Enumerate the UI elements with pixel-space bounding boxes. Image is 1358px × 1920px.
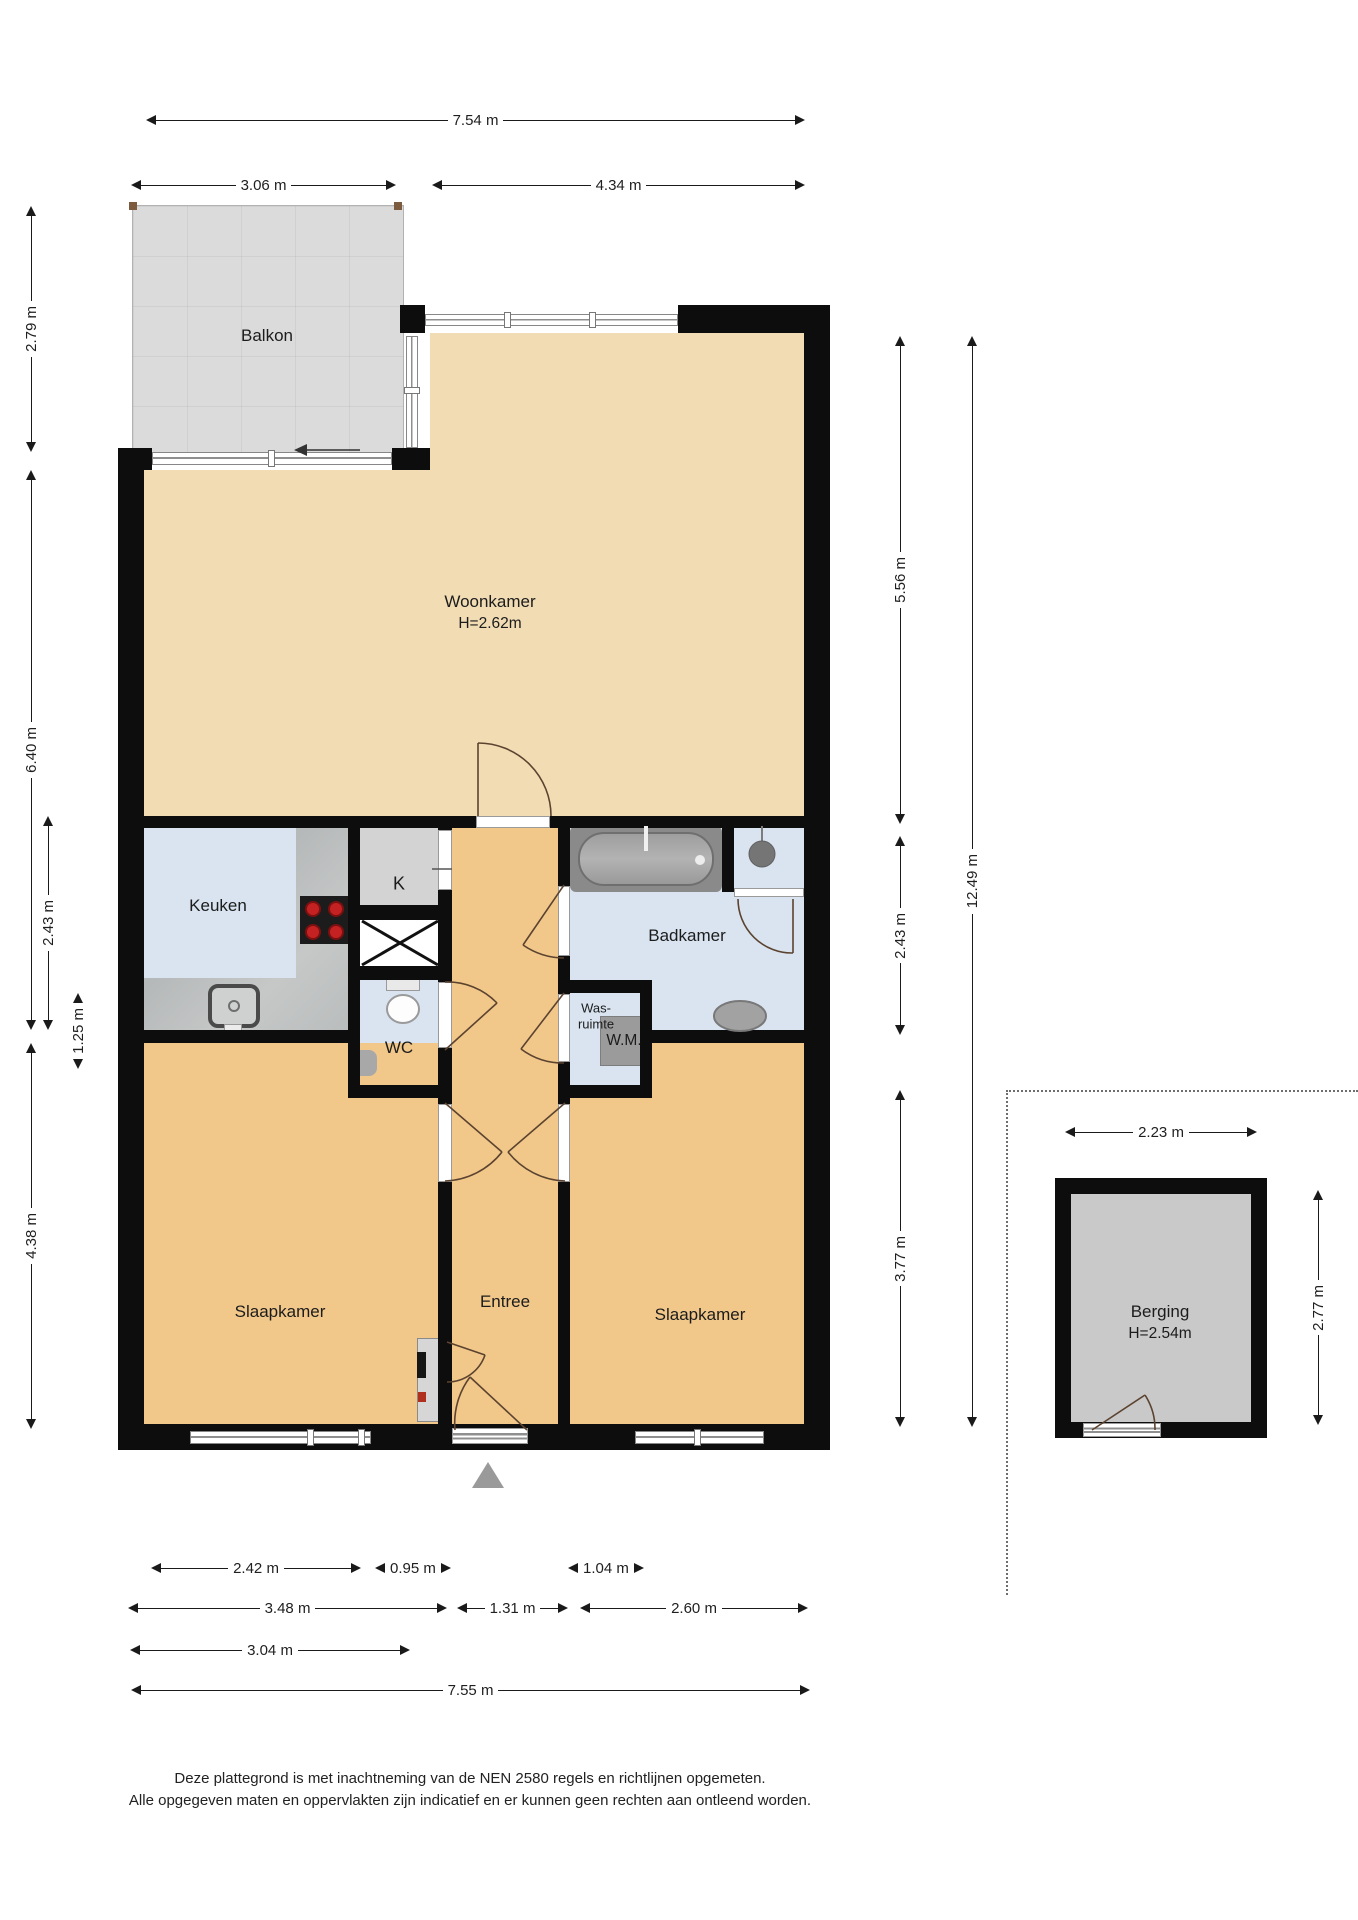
bathtub-inner (578, 832, 714, 886)
wasruimte-door-opening (558, 994, 570, 1062)
woonkamer-floor (430, 333, 804, 816)
dimension-right-badkamer: 2.43 m (892, 836, 908, 1035)
window-mullion (504, 312, 511, 328)
dimension-right-slaapkamer: 3.77 m (892, 1090, 908, 1427)
berging-label: Berging (1131, 1302, 1190, 1322)
sliding-door-divider (268, 450, 275, 467)
dimension-top-balkon: 3.06 m (131, 177, 396, 193)
cooktop (300, 896, 348, 944)
wc-label: WC (385, 1038, 413, 1058)
wall-wasruimte-top (558, 980, 652, 993)
entrance-arrow-icon (472, 1462, 504, 1488)
window-mullion (589, 312, 596, 328)
dimension-left-balkon: 2.79 m (23, 206, 39, 452)
wall-wasruimte-bottom (558, 1085, 652, 1098)
window-mullion (307, 1429, 314, 1446)
wasruimte-label-2: ruimte (578, 1017, 614, 1032)
disclaimer-line-1: Deze plattegrond is met inachtneming van… (60, 1768, 880, 1790)
wall-keuken-bottom (118, 1030, 360, 1043)
wall-outer-top (678, 305, 804, 333)
dimension-left-wc: 1.25 m (70, 993, 86, 1098)
wall-kast-bottom (348, 905, 452, 920)
wall-woonkamer-bottom (144, 816, 804, 828)
slaapkamer-links-door-opening (438, 1104, 452, 1182)
berging-boundary-vertical (1006, 1090, 1008, 1595)
meter-unit (417, 1352, 426, 1378)
wall-wc-bottom (348, 1085, 452, 1098)
kast-door-opening (438, 830, 452, 890)
dimension-bottom-slaapkamer-links: 3.48 m (128, 1600, 447, 1616)
shower-screen (734, 888, 804, 897)
woonkamer-window-top (425, 314, 678, 326)
dimension-bottom-slaapkamer-rechts: 2.60 m (580, 1600, 808, 1616)
wall-outer-right (804, 305, 830, 1450)
dimension-bottom-entree: 1.31 m (457, 1600, 568, 1616)
wall-outer-left (118, 448, 144, 1450)
kast-label: K (393, 874, 405, 895)
wc-door-opening (438, 982, 452, 1048)
dimension-bottom-raam-rechts: 1.04 m (568, 1560, 655, 1576)
slaapkamer-links-floor (144, 1043, 438, 1424)
wall-balkon-left (118, 448, 152, 470)
floorplan-canvas: Balkon Woonkamer H=2.62m Keuken K Badkam… (0, 0, 1358, 1920)
balkon-post (394, 202, 402, 210)
wc-corner-sink (360, 1050, 377, 1076)
dimension-right-woonkamer: 5.56 m (892, 336, 908, 824)
wall-shower-stub (722, 828, 734, 892)
schacht-floor (360, 920, 438, 966)
wasmachine-label: W.M. (606, 1032, 641, 1050)
dimension-left-keuken: 2.43 m (40, 816, 56, 1030)
window-mullion (694, 1429, 701, 1446)
wall-balkon-right (392, 448, 430, 470)
wall-badkamer-bottom (640, 1030, 804, 1043)
disclaimer: Deze plattegrond is met inachtneming van… (60, 1768, 880, 1812)
dimension-bottom-deur: 0.95 m (375, 1560, 454, 1576)
slaapkamer-links-label: Slaapkamer (235, 1302, 326, 1322)
window-mullion (358, 1429, 365, 1446)
dimension-left-woonkamer-keuken: 6.40 m (23, 470, 39, 1030)
dimension-right-overall: 12.49 m (964, 336, 980, 1427)
wall-top-corner (400, 305, 425, 333)
kitchen-sink (208, 984, 260, 1028)
berging-height-label: H=2.54m (1128, 1325, 1191, 1343)
wall-keuken-kast (348, 828, 360, 1098)
window-mullion (404, 387, 420, 394)
woonkamer-floor-left (144, 470, 430, 816)
berging-boundary-horizontal (1006, 1090, 1358, 1092)
voordeur-threshold (452, 1428, 528, 1444)
balkon-label: Balkon (241, 326, 293, 346)
wall-schacht-bottom (348, 966, 452, 980)
keuken-label: Keuken (189, 896, 247, 916)
dimension-bottom-raam-links: 2.42 m (151, 1560, 361, 1576)
dimension-bottom-links: 3.04 m (130, 1642, 410, 1658)
woonkamer-door-opening (476, 816, 550, 828)
dimension-top-overall: 7.54 m (146, 112, 805, 128)
dimension-berging-diepte: 2.77 m (1310, 1190, 1326, 1425)
entree-floor (452, 828, 558, 1424)
badkamer-label: Badkamer (648, 926, 725, 946)
berging-door-threshold (1083, 1423, 1161, 1437)
dimension-top-woonkamer: 4.34 m (432, 177, 805, 193)
wasruimte-label-1: Was- (581, 1001, 611, 1016)
badkamer-door-opening (558, 886, 570, 956)
disclaimer-line-2: Alle opgegeven maten en oppervlakten zij… (60, 1790, 880, 1812)
slaapkamer-links-window (190, 1431, 371, 1444)
entree-label: Entree (480, 1292, 530, 1312)
woonkamer-label: Woonkamer (444, 592, 535, 612)
slaapkamer-rechts-floor (570, 1043, 804, 1424)
dimension-bottom-overall: 7.55 m (131, 1682, 810, 1698)
balkon-post (129, 202, 137, 210)
dimension-berging-breedte: 2.23 m (1065, 1124, 1257, 1140)
slaapkamer-rechts-label: Slaapkamer (655, 1305, 746, 1325)
meter-marks (418, 1392, 426, 1402)
woonkamer-height-label: H=2.62m (458, 615, 521, 633)
slaapkamer-rechts-door-opening (558, 1104, 570, 1182)
dimension-left-slaapkamer: 4.38 m (23, 1043, 39, 1429)
